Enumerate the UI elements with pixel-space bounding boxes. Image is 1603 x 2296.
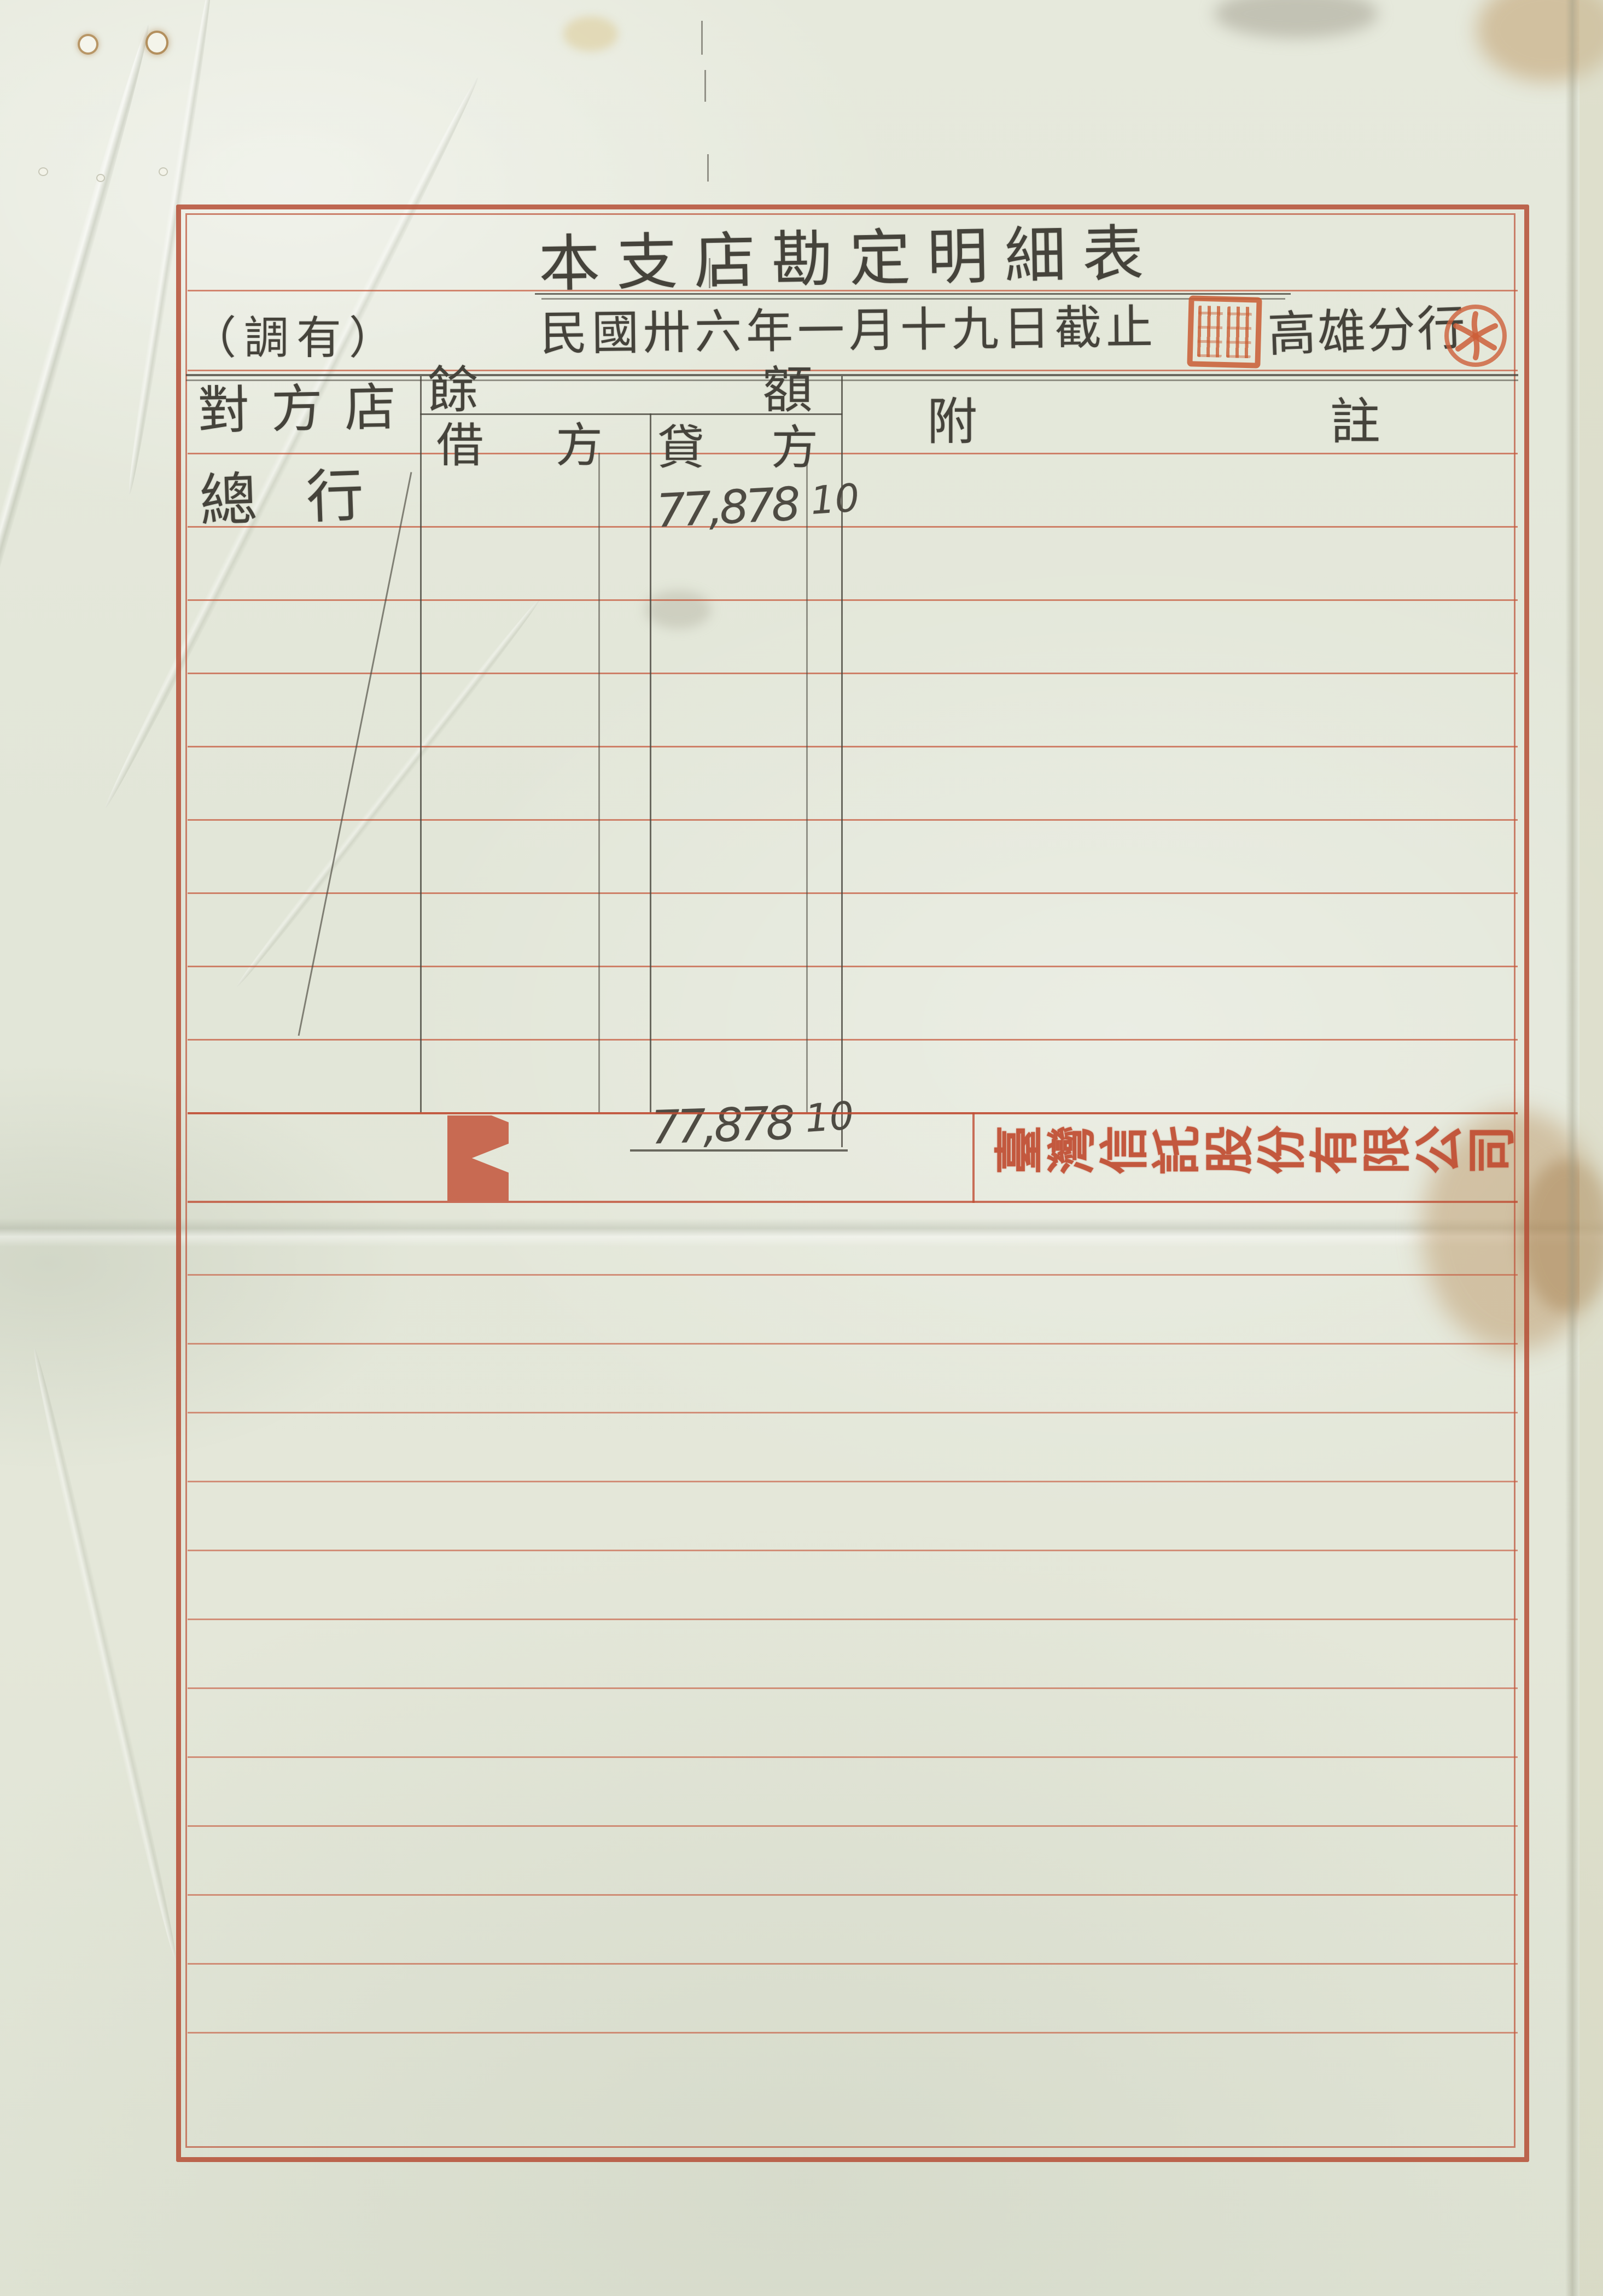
corner-annotation: （調有） (191, 316, 401, 361)
yellow-spot (563, 16, 618, 51)
torn-hole (78, 34, 98, 55)
debit-cents-divider (598, 453, 600, 1112)
square-red-seal (1187, 295, 1262, 368)
col-divider-debit-credit (650, 413, 651, 1112)
row-credit-amount: 77,878 (655, 481, 798, 534)
row-counterparty: 總行 (199, 465, 413, 530)
ruled-lines-lower-area (188, 1274, 1518, 2035)
seal-script-column (1226, 306, 1252, 358)
paper-speck (159, 167, 168, 176)
right-edge-shade (1565, 0, 1579, 2296)
scanned-ledger-document: { "document": { "title": "本支店勘定明細表", "da… (0, 0, 1603, 2296)
perforation-mark (707, 154, 709, 182)
title-underline (535, 293, 1291, 295)
perforation-mark (701, 21, 703, 55)
row-credit-cents: 10 (809, 478, 861, 520)
paper-speck (96, 174, 105, 182)
company-box-divider (972, 1112, 975, 1203)
title-underline-2 (541, 298, 1285, 300)
ruled-lines-table-area (188, 453, 1518, 1114)
round-red-seal (1442, 302, 1509, 370)
document-title: 本支店勘定明細表 (538, 223, 1161, 295)
paper-speck (38, 167, 48, 176)
perforation-mark (704, 70, 706, 102)
branch-name: 高雄分行 (1267, 304, 1468, 359)
date-line: 民國卅六年一月十九日截止 (540, 304, 1158, 358)
right-edge-tone (1579, 0, 1603, 2296)
credit-cents-divider (806, 453, 808, 1112)
seal-script-column (1197, 306, 1223, 358)
col-divider-counterparty (420, 376, 422, 1112)
company-name-imprint: 臺灣信託股份有限公司 (993, 1124, 1513, 1190)
header-notes: 附註 (927, 397, 1603, 447)
header-counterparty: 對方店 (197, 382, 418, 437)
torn-hole (145, 31, 168, 55)
header-credit: 貸方 (657, 424, 885, 471)
header-debit: 借方 (436, 422, 675, 469)
